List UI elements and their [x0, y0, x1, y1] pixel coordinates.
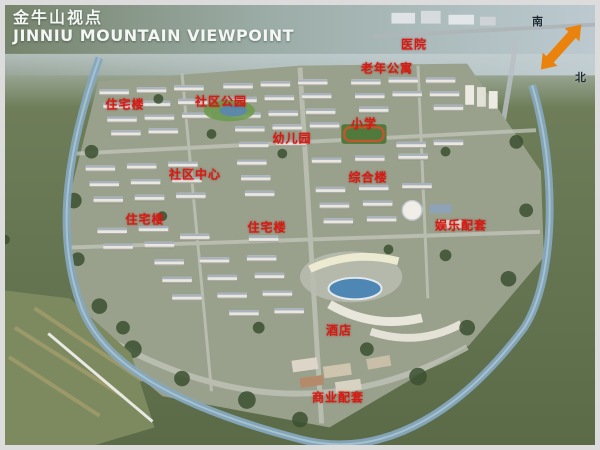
map-label: 酒店 — [326, 322, 352, 339]
map-label: 商业配套 — [312, 389, 364, 406]
map-label: 住宅楼 — [105, 96, 144, 113]
map-label: 综合楼 — [348, 169, 387, 186]
map-label: 社区中心 — [169, 166, 221, 183]
map-label: 社区公园 — [195, 93, 247, 110]
map-label: 小学 — [351, 115, 377, 132]
label-layer: 医院老年公寓住宅楼社区公园幼儿园小学社区中心综合楼住宅楼住宅楼娱乐配套酒店商业配… — [5, 5, 595, 445]
map-label: 住宅楼 — [247, 219, 286, 236]
map-label: 住宅楼 — [125, 211, 164, 228]
map-label: 老年公寓 — [361, 60, 413, 77]
aerial-rendering: 金牛山视点 JINNIU MOUNTAIN VIEWPOINT 南 北 医院老年… — [0, 0, 600, 450]
map-label: 医院 — [401, 36, 427, 53]
map-label: 娱乐配套 — [435, 217, 487, 234]
map-label: 幼儿园 — [272, 130, 311, 147]
